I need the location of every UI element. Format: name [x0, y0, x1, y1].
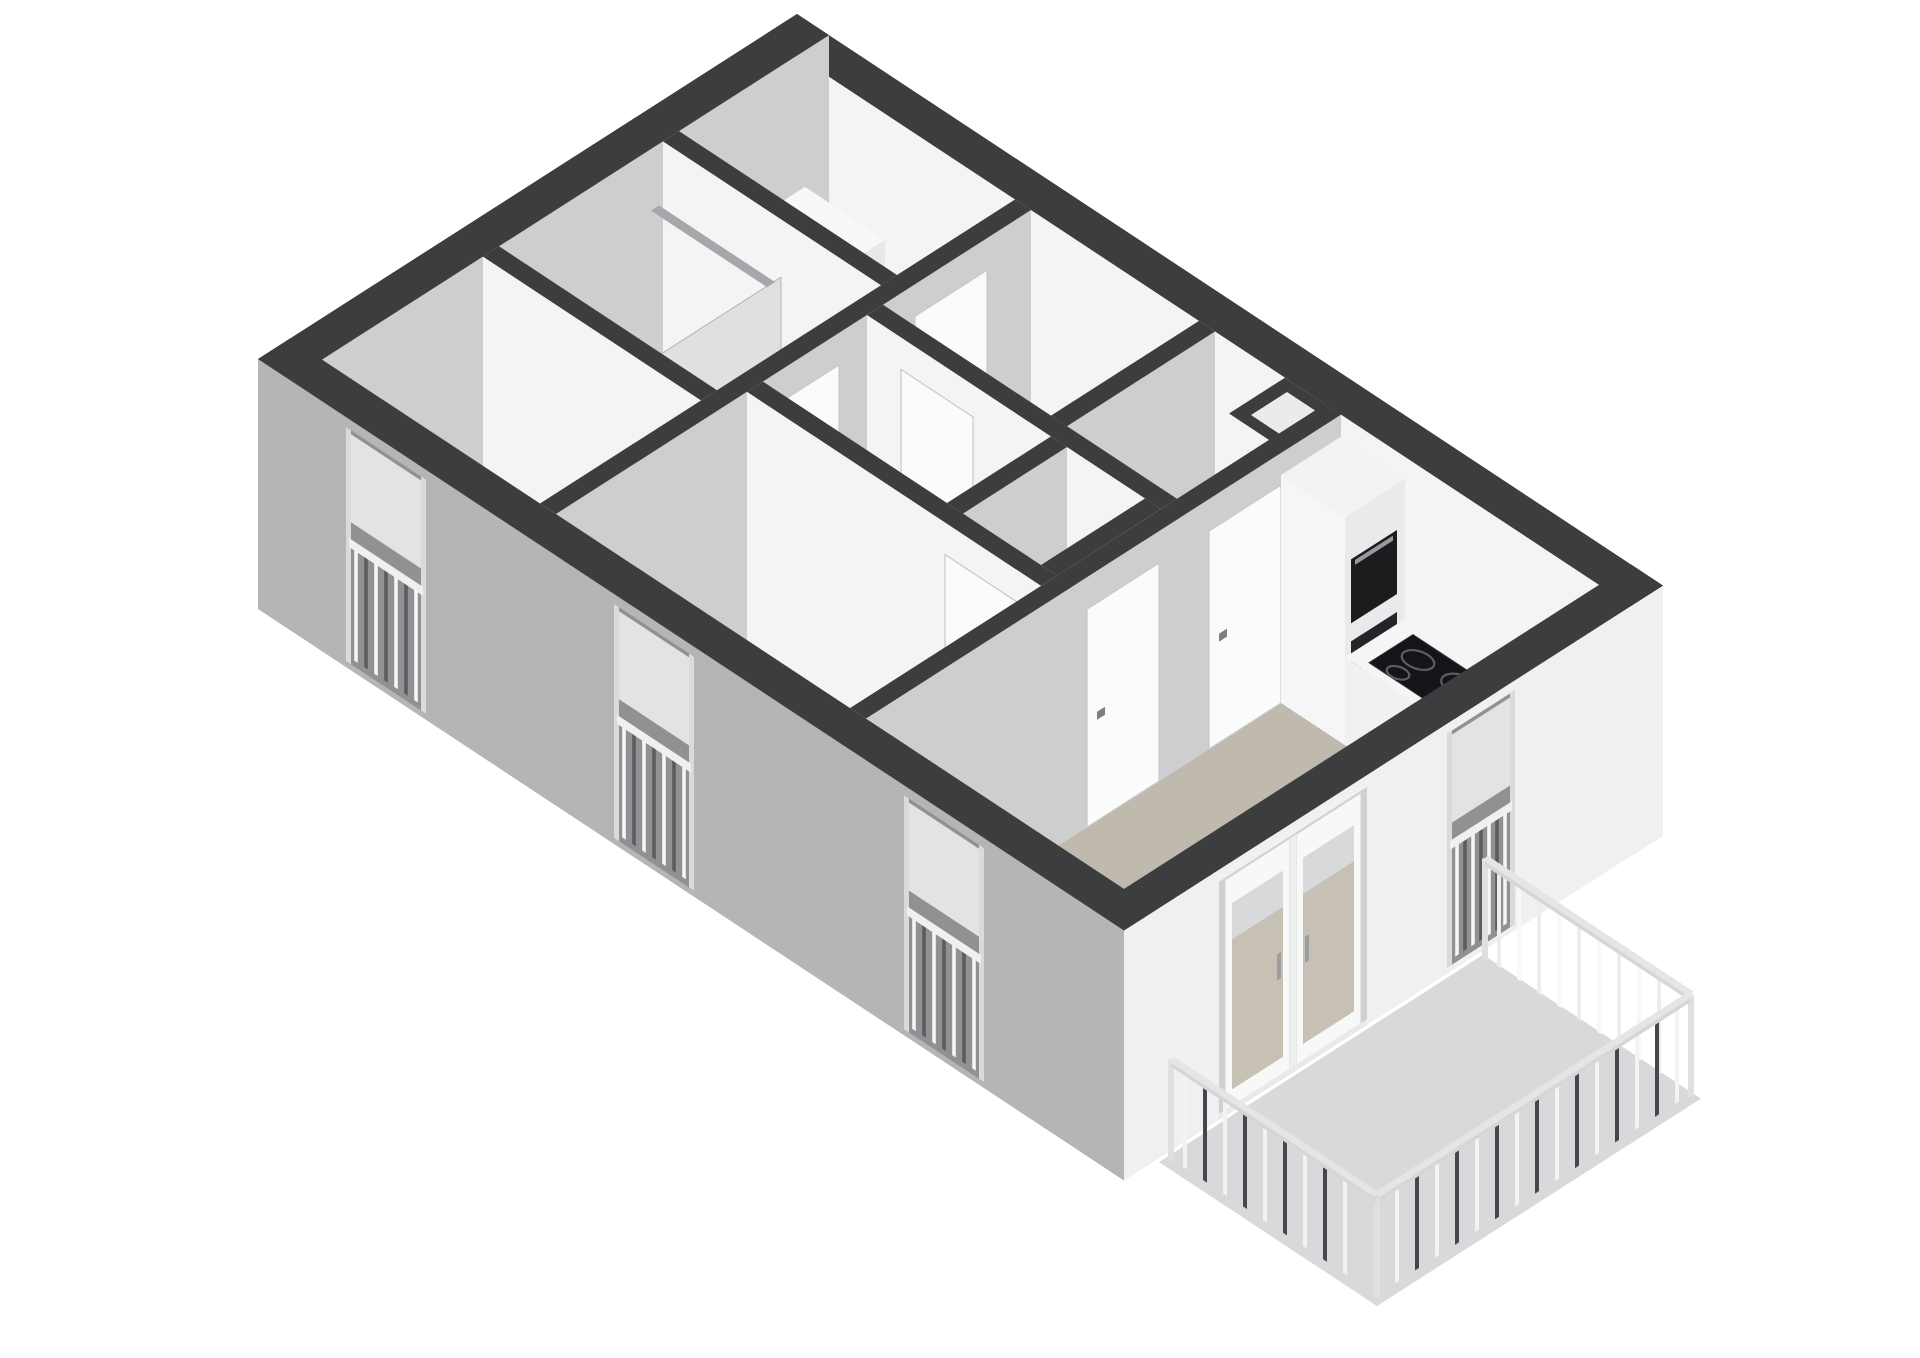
living-room-door [1209, 485, 1281, 749]
floorplan-3d-stage [0, 0, 1920, 1358]
balcony-railing-ne [1482, 858, 1488, 962]
balcony-railing-se [1688, 994, 1694, 1098]
hall-door-south [1087, 563, 1159, 827]
balcony-railing-sw [1168, 1059, 1174, 1163]
floorplan-3d-render [0, 0, 1920, 1358]
